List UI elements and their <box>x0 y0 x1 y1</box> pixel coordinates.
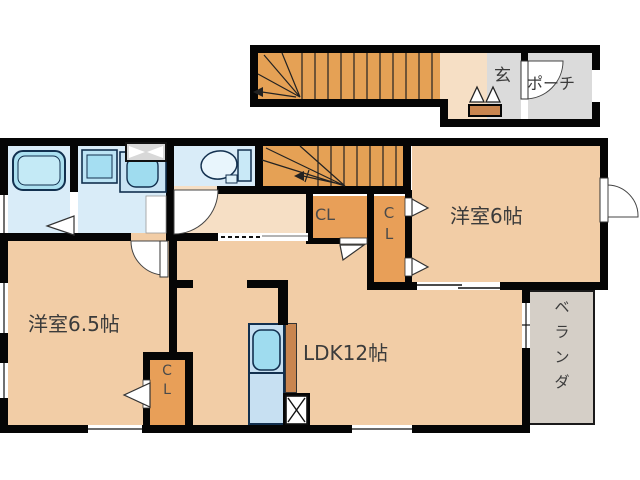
wall-segment <box>166 146 174 233</box>
wall-segment <box>368 282 417 290</box>
ldk-label: LDK12帖 <box>303 337 388 366</box>
kitchen-counter <box>248 323 285 425</box>
closet3-label-c: C <box>157 363 177 379</box>
kitchen-counter-divider <box>250 372 283 374</box>
bedroom6-label: 洋室6帖 <box>450 200 523 229</box>
wall-segment <box>247 280 288 288</box>
fridge-niche <box>283 393 310 427</box>
veranda-label-4: ダ <box>549 371 575 392</box>
porch-label: ポーチ <box>527 70 575 94</box>
wall-segment <box>405 190 412 198</box>
closet2-label-l: L <box>378 225 400 243</box>
floorplan-canvas: 玄 ポーチ 洋室6帖 洋室6.5帖 LDK12帖 CL C L C L ベ ラ … <box>0 0 640 480</box>
wall-segment <box>255 146 263 186</box>
washroom-floor <box>78 146 166 233</box>
wall-segment <box>0 425 530 433</box>
wall-segment <box>600 222 608 290</box>
wall-segment <box>250 99 448 107</box>
wall-segment <box>217 186 411 194</box>
wall-segment <box>306 238 340 244</box>
wall-segment <box>177 280 193 288</box>
wall-segment <box>166 233 218 241</box>
veranda-label-3: ン <box>549 346 575 367</box>
wall-segment <box>440 119 600 127</box>
wall-segment <box>600 138 608 178</box>
bedroom65-label: 洋室6.5帖 <box>28 308 120 337</box>
closet3-label-l: L <box>157 382 177 398</box>
closet2-label-c: C <box>378 204 400 222</box>
bath-door-gap <box>70 192 78 233</box>
wall-segment <box>521 53 528 63</box>
wall-segment <box>306 190 313 244</box>
wall-segment <box>592 102 600 127</box>
wall-segment <box>522 348 530 433</box>
wall-segment <box>250 45 258 107</box>
wall-segment <box>250 45 600 53</box>
veranda-label-2: ラ <box>549 321 575 342</box>
wall-segment <box>185 352 193 425</box>
genkan-label: 玄 <box>494 61 511 86</box>
veranda-label-1: ベ <box>549 296 575 317</box>
wall-segment <box>143 360 150 380</box>
closet2-door-leaf-upper <box>405 198 412 216</box>
wall-segment <box>405 216 412 258</box>
kitchen-side-cabinet <box>285 323 297 393</box>
stairs-1f <box>258 53 440 99</box>
wall-segment <box>278 288 288 325</box>
wall-segment <box>0 138 608 146</box>
wall-segment <box>522 282 530 303</box>
wall-segment <box>0 138 8 433</box>
wall-segment <box>143 408 150 425</box>
closet1-label: CL <box>315 205 335 224</box>
wall-segment <box>592 45 600 70</box>
toilet-floor <box>174 146 255 186</box>
wall-segment <box>70 146 78 192</box>
wall-segment <box>367 190 374 290</box>
wall-segment <box>8 233 131 241</box>
stairs-2f <box>262 146 403 186</box>
bedroom6-door-arc <box>608 185 638 217</box>
bedroom6-door-leaf <box>600 178 608 222</box>
wall-segment <box>500 282 608 290</box>
wall-segment <box>169 241 177 360</box>
shoe-cabinet <box>468 104 502 117</box>
bathroom-floor <box>8 146 70 233</box>
